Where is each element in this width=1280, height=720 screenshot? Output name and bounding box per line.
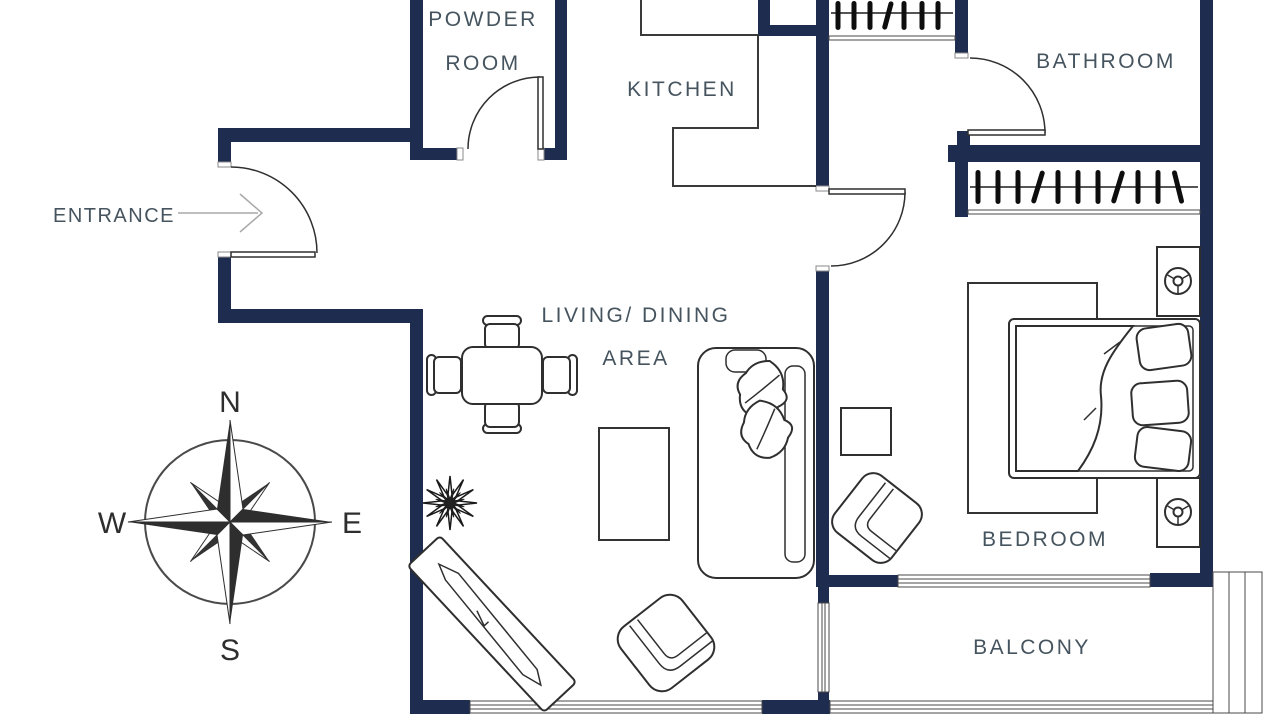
living-dining-label-line1: LIVING/ DINING	[541, 304, 730, 327]
closet-front-line	[829, 36, 955, 40]
wall	[1150, 573, 1213, 587]
wall	[762, 700, 830, 714]
dining-chair	[485, 402, 519, 427]
entrance-door	[231, 167, 317, 257]
door-jamb	[816, 266, 829, 271]
bedroom-label: BEDROOM	[982, 528, 1108, 551]
nightstand	[1157, 478, 1200, 547]
sofa	[698, 348, 814, 578]
windows	[470, 572, 1262, 713]
hanger-icon	[976, 170, 981, 204]
floor-plan-drawing: N S W E POWDER ROOM KITCHEN BATHROOM ENT…	[0, 0, 1280, 720]
compass-rose	[128, 420, 332, 624]
bed-pillow	[1134, 426, 1192, 472]
wall	[410, 700, 470, 714]
door-swing-arc	[970, 58, 1045, 133]
balcony-railing-bottom	[830, 701, 1262, 713]
balcony-label: BALCONY	[973, 636, 1091, 659]
wall	[1200, 0, 1213, 577]
closet-front-line	[968, 210, 1200, 214]
compass-cardinal-points	[128, 420, 332, 624]
bed	[1009, 319, 1200, 478]
door-swing-arc	[468, 77, 540, 149]
wall	[816, 575, 900, 587]
dining-chair	[485, 324, 519, 349]
wall	[816, 0, 829, 186]
wall	[816, 271, 829, 577]
door-leaf	[829, 189, 905, 194]
hanger-icon	[920, 1, 925, 30]
bed-pillow	[1131, 380, 1190, 426]
door-leaf	[231, 252, 315, 257]
hanger-icon	[1156, 170, 1161, 204]
door-jamb	[538, 148, 544, 160]
corridor-door	[829, 189, 905, 266]
dining-chair	[543, 357, 570, 393]
wall	[818, 587, 829, 603]
armchair	[826, 467, 927, 568]
door-jamb	[955, 53, 968, 58]
living-window	[470, 701, 762, 713]
hanger-icon	[1096, 170, 1101, 204]
door-jamb	[457, 148, 463, 160]
hanger-icon	[1076, 170, 1081, 204]
lamp-center	[1174, 277, 1183, 286]
hanger-icon	[1136, 170, 1141, 204]
hanger-icon	[882, 1, 894, 30]
entrance-label: ENTRANCE	[53, 205, 175, 227]
door-jambs	[218, 53, 968, 271]
hanger-icon	[1016, 170, 1021, 204]
living-dining-label-line2: AREA	[602, 347, 669, 370]
wall	[218, 128, 231, 162]
wall	[218, 309, 423, 323]
door-swing-arc	[231, 167, 317, 253]
bathroom-label: BATHROOM	[1036, 50, 1176, 73]
wall	[410, 309, 423, 714]
bedroom-closet	[968, 170, 1200, 214]
dining-table	[462, 347, 542, 404]
wall	[218, 128, 423, 142]
hanger-icon	[902, 1, 907, 30]
side-table	[841, 408, 891, 455]
living-rug	[599, 428, 669, 540]
wall	[410, 148, 457, 160]
compass-label-north: N	[219, 386, 241, 419]
wall	[955, 0, 968, 53]
door-swing-arc	[831, 192, 905, 266]
kitchen-label: KITCHEN	[627, 78, 737, 101]
floor-plan: N S W E POWDER ROOM KITCHEN BATHROOM ENT…	[0, 0, 1280, 720]
powder-room-door	[468, 77, 543, 149]
powder-room-label-line1: POWDER	[428, 8, 538, 31]
console-detail	[429, 559, 553, 690]
balcony-sliding-window	[898, 575, 1150, 587]
dining-chair	[434, 357, 461, 393]
wall	[758, 25, 816, 36]
armchair	[611, 588, 720, 697]
dining-set	[427, 316, 577, 433]
wall	[948, 145, 1213, 162]
bathroom-door	[968, 58, 1045, 135]
door-leaf	[538, 77, 543, 149]
door-jamb	[218, 252, 231, 257]
hanger-icon	[868, 1, 873, 30]
door-jamb	[816, 186, 829, 191]
wall	[555, 0, 567, 160]
bed-pillow	[1135, 323, 1192, 372]
compass-label-east: E	[342, 507, 362, 540]
hanger-icon	[936, 1, 941, 30]
entrance-arrow-icon	[178, 194, 262, 232]
wall	[218, 257, 231, 314]
powder-room-label-line2: ROOM	[445, 52, 520, 75]
door-jamb	[218, 162, 231, 167]
balcony-side-window	[818, 603, 829, 692]
wall	[955, 145, 968, 217]
balcony-railing-right	[1213, 572, 1262, 713]
hanger-icon	[852, 1, 857, 30]
compass-label-south: S	[220, 634, 240, 667]
console-table	[408, 536, 577, 712]
compass-label-west: W	[98, 507, 127, 540]
hanger-icon	[1056, 170, 1061, 204]
nightstand	[1157, 247, 1200, 316]
wall	[410, 0, 423, 160]
hanger-icon	[996, 170, 1001, 204]
lamp-center	[1174, 508, 1183, 517]
hanger-icon	[836, 1, 841, 30]
door-leaf	[968, 130, 1045, 135]
hall-closet	[829, 1, 955, 40]
hangers	[836, 1, 941, 30]
plant-icon	[423, 476, 477, 530]
